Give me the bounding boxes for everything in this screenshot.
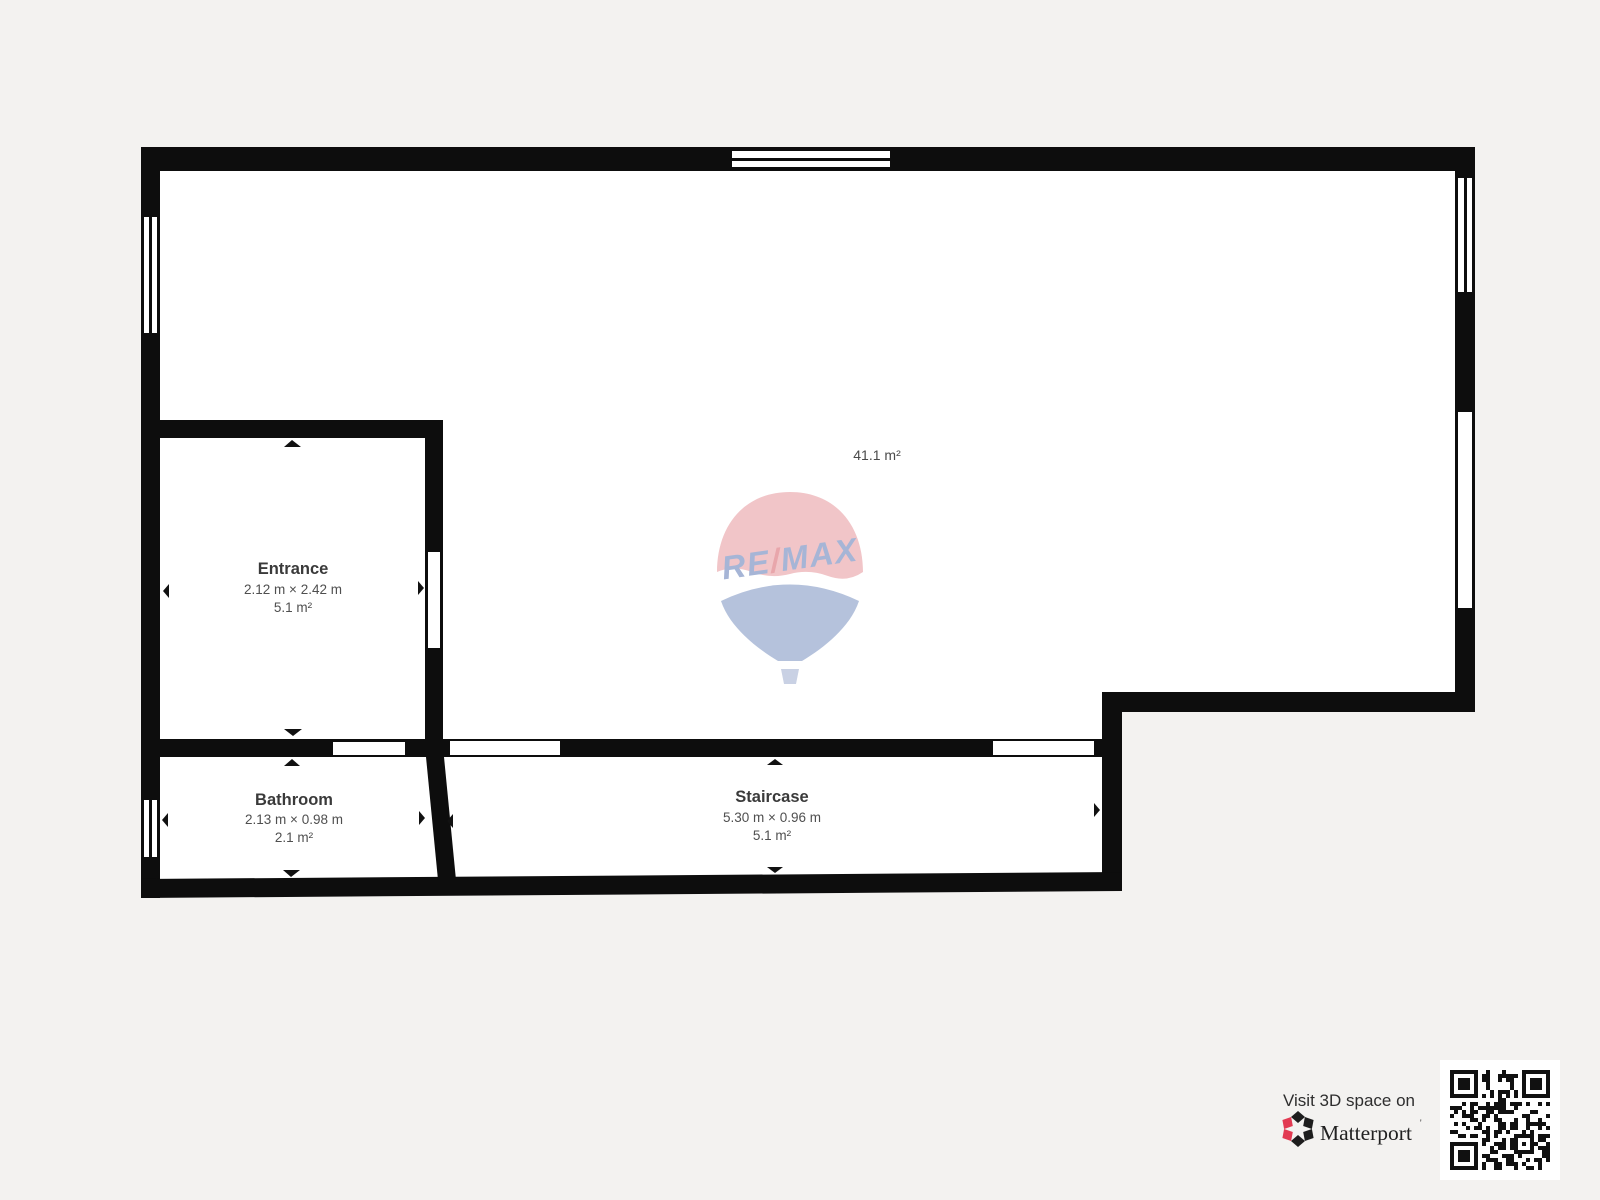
room-area-entrance: 5.1 m² xyxy=(274,600,313,615)
window-right-lower-icon xyxy=(1458,412,1472,608)
room-dimensions-staircase: 5.30 m × 0.96 m xyxy=(723,810,821,825)
opening-entrance-bathroom xyxy=(333,742,405,755)
main-room-area: 41.1 m² xyxy=(853,447,901,463)
room-dimensions-entrance: 2.12 m × 2.42 m xyxy=(244,582,342,597)
matterport-wordmark: Matterport xyxy=(1320,1121,1412,1145)
wall-bottom-main xyxy=(1102,692,1475,712)
footer-branding: Visit 3D space on Matterport ' xyxy=(1279,1091,1422,1147)
room-name-entrance: Entrance xyxy=(258,560,329,578)
matterport-trademark: ' xyxy=(1420,1118,1422,1128)
wall-entrance-top xyxy=(141,420,443,438)
balloon-basket xyxy=(781,669,799,684)
opening-staircase-right xyxy=(993,741,1094,755)
matterport-logo-icon xyxy=(1279,1111,1317,1147)
opening-entrance-main xyxy=(428,552,440,648)
qr-code xyxy=(1440,1060,1560,1180)
floor-plan-canvas: 41.1 m² Entrance 2.12 m × 2.42 m 5.1 m² … xyxy=(0,0,1600,1200)
window-left-upper-icon xyxy=(144,217,157,333)
room-area-staircase: 5.1 m² xyxy=(753,828,792,843)
opening-staircase-left xyxy=(450,741,560,755)
window-top-icon xyxy=(732,151,890,167)
room-dimensions-bathroom: 2.13 m × 0.98 m xyxy=(245,812,343,827)
room-name-bathroom: Bathroom xyxy=(255,791,333,809)
wall-step xyxy=(1102,692,1122,891)
visit-3d-text: Visit 3D space on xyxy=(1283,1091,1415,1110)
window-right-upper-icon xyxy=(1458,178,1472,292)
room-area-bathroom: 2.1 m² xyxy=(275,830,314,845)
room-name-staircase: Staircase xyxy=(735,788,808,806)
window-bathroom-left-icon xyxy=(144,800,157,857)
floor-plan-page: 41.1 m² Entrance 2.12 m × 2.42 m 5.1 m² … xyxy=(0,0,1600,1200)
